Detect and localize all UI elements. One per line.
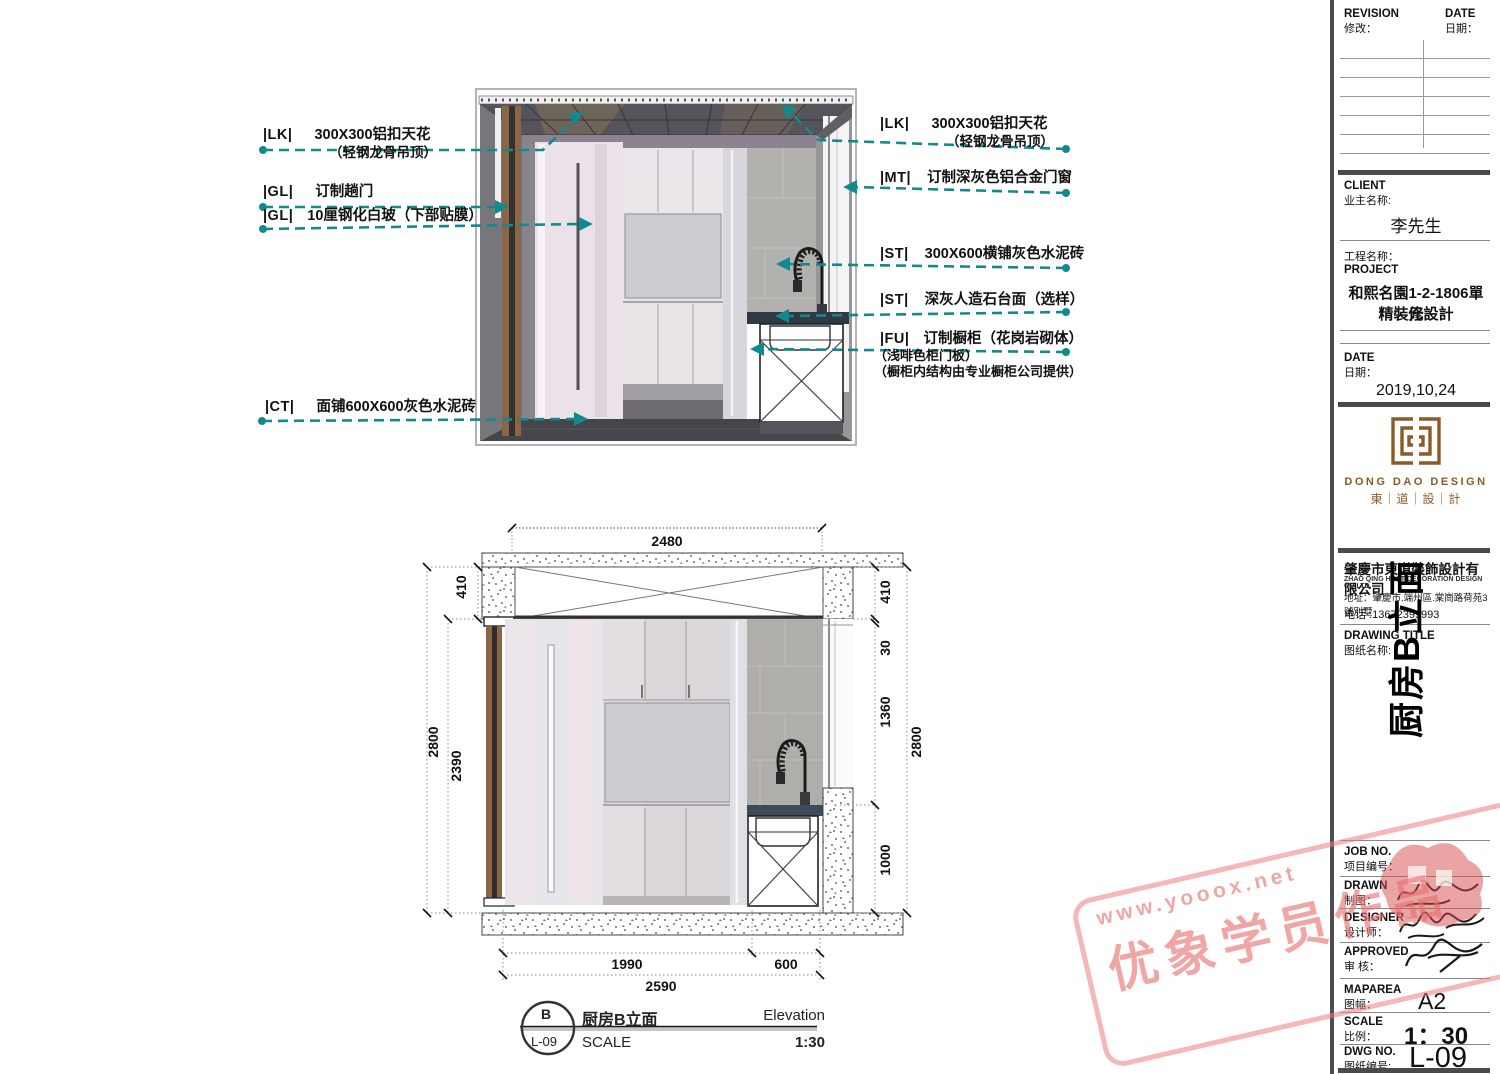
title-block: REVISION 修改： DATE 日期： CLIENT 业主名称: 李先生 工…	[1330, 0, 1496, 1074]
tag-st: |ST|	[880, 292, 909, 309]
svg-text:30: 30	[877, 640, 893, 656]
tag-gl: |GL|	[263, 184, 293, 201]
svg-text:2390: 2390	[448, 750, 464, 781]
annotation-floor-tile: |CT|面铺600X600灰色水泥砖	[265, 399, 476, 416]
tag-fu: |FU|	[880, 331, 909, 348]
kitchen-perspective-view	[475, 88, 857, 448]
svg-text:1000: 1000	[877, 844, 893, 875]
tag-mt: |MT|	[880, 170, 911, 187]
kitchen-elevation-drawing: 2480	[420, 520, 935, 1012]
annotation-wall-tile: |ST|300X600横铺灰色水泥砖	[880, 246, 1084, 263]
svg-text:1360: 1360	[877, 696, 893, 727]
tag-lk: |LK|	[263, 127, 292, 144]
scale-bar-title: 厨房B立面	[582, 1006, 658, 1030]
svg-text:1990: 1990	[611, 956, 642, 972]
svg-text:410: 410	[453, 575, 469, 599]
scale-value: 1:30	[795, 1034, 825, 1051]
scale-bar: B L-09 厨房B立面 Elevation SCALE 1:30	[515, 998, 825, 1060]
tag-st: |ST|	[880, 246, 909, 263]
drawn-signature	[1392, 876, 1492, 910]
client-name: 李先生	[1344, 212, 1488, 237]
drawing-sheet: |LK|300X300铝扣天花 （轻钢龙骨吊顶） |GL|订制趟门 |GL|10…	[0, 0, 1500, 1074]
annotation-sliding-door: |GL|订制趟门	[263, 184, 373, 201]
annotation-ceiling-right: |LK|300X300铝扣天花 （轻钢龙骨吊顶）	[880, 116, 1054, 149]
project-label: 工程名称： PROJECT	[1344, 248, 1488, 276]
annotation-window: |MT|订制深灰色铝合金门窗	[880, 170, 1072, 187]
date-value: 2019,10,24	[1344, 382, 1488, 400]
approved-signature	[1400, 938, 1500, 976]
svg-text:600: 600	[774, 956, 798, 972]
logo-text-cn: 東｜道｜設｜計	[1344, 490, 1488, 507]
svg-text:2590: 2590	[645, 978, 676, 994]
maparea-value: A2	[1418, 988, 1488, 1015]
job-no-label: JOB NO. 项目编号：	[1344, 846, 1488, 874]
dongdao-logo-emblem	[1382, 414, 1450, 472]
annotation-ceiling-left: |LK|300X300铝扣天花 （轻钢龙骨吊顶）	[263, 127, 437, 160]
svg-text:410: 410	[877, 580, 893, 604]
elevation-label: Elevation	[763, 1007, 825, 1024]
designer-signature	[1396, 906, 1496, 942]
logo-text-en: DONG DAO DESIGN	[1344, 476, 1488, 488]
revision-table	[1340, 40, 1490, 166]
annotation-countertop: |ST|深灰人造石台面（选样）	[880, 292, 1084, 309]
scale-label: SCALE	[582, 1034, 631, 1051]
client-label: CLIENT 业主名称:	[1344, 180, 1488, 208]
detail-bubble-sheet: L-09	[531, 1034, 557, 1049]
tag-lk: |LK|	[880, 116, 909, 133]
date-label: DATE 日期：	[1344, 352, 1488, 380]
detail-bubble-letter: B	[541, 1006, 551, 1022]
annotation-cabinet: |FU|订制橱柜（花岗岩砌体） （浅啡色柜门板） （橱柜内结构由专业橱柜公司提供…	[880, 331, 1083, 380]
project-name-line2: 精裝修設計	[1344, 303, 1488, 324]
revision-header: REVISION 修改： DATE 日期：	[1344, 8, 1488, 36]
tag-ct: |CT|	[265, 399, 294, 416]
tag-gl: |GL|	[263, 208, 293, 225]
annotation-glass: |GL|10厘钢化白玻（下部贴膜）	[263, 208, 483, 225]
svg-text:2800: 2800	[425, 726, 441, 757]
svg-text:2800: 2800	[908, 726, 924, 757]
dongdao-logo: DONG DAO DESIGN 東｜道｜設｜計	[1344, 414, 1488, 507]
svg-text:2480: 2480	[651, 533, 682, 549]
